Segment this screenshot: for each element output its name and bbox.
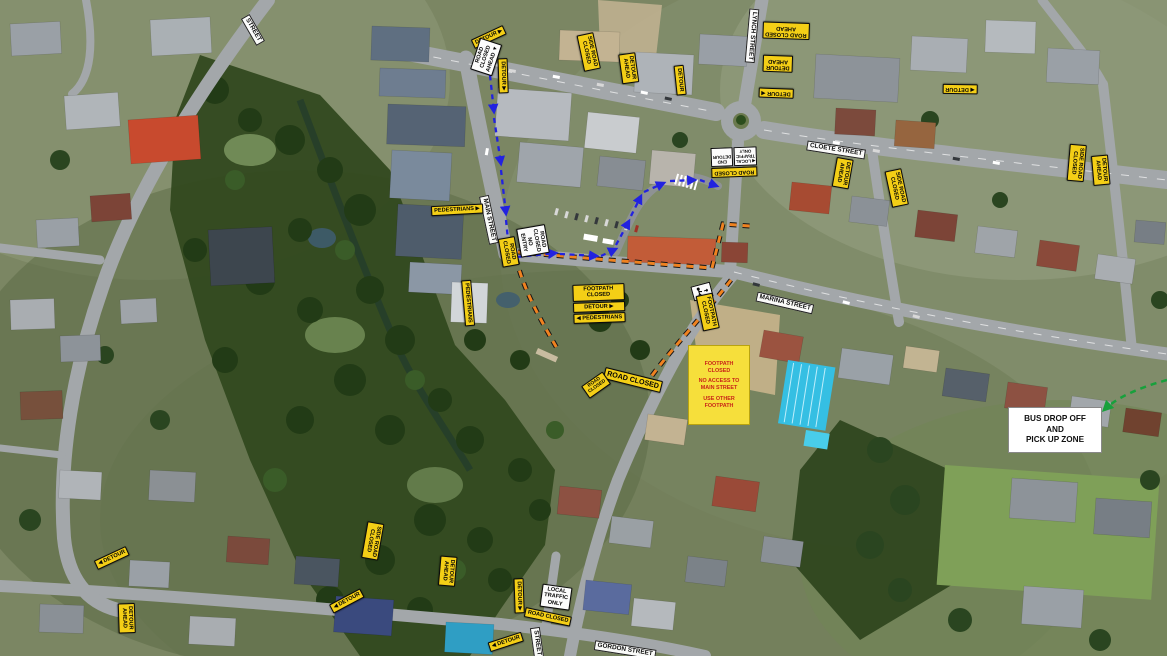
bus-drop-off-zone-label: BUS DROP OFF AND PICK UP ZONE [1008, 407, 1102, 453]
cluster-detour-sign: DETOUR ▶ [573, 301, 625, 313]
street-label-street-s: STREET [530, 627, 544, 656]
sign-road-closed-banner: ROAD CLOSED [603, 367, 663, 393]
assembly-end-detour-panel: END DETOUR [710, 147, 733, 167]
sign-pedestrians-west: PEDESTRIANS ▶ [431, 204, 483, 217]
sign-local-traffic-only-white: LOCALTRAFFICONLY [540, 584, 573, 611]
sign-detour-ahead-wsw: DETOURAHEAD [118, 603, 136, 633]
sign-side-road-closed-north: SIDE ROADCLOSED [577, 32, 601, 72]
sign-layer: FOOTPATH CLOSED DETOUR ▶ ◀ PEDESTRIANS R… [0, 0, 1167, 656]
road-closed-assembly-sign: ROAD CLOSED ◀ LOCAL TRAFFIC ONLY END DET… [710, 146, 757, 178]
footpath-closed-notice: FOOTPATH CLOSED NO ACCESS TO MAIN STREET… [688, 345, 750, 425]
sign-detour-ahead-east: DETOURAHEAD [832, 157, 853, 189]
sign-detour-sw: ◀ DETOUR [329, 588, 365, 614]
assembly-local-traffic-panel: ◀ LOCAL TRAFFIC ONLY [734, 146, 757, 166]
assembly-header: ROAD CLOSED [711, 166, 757, 178]
sign-detour-roundabout-east: ◀ DETOUR [942, 84, 978, 95]
sign-detour-ahead-far-east: DETOURAHEAD [1091, 155, 1110, 186]
sign-detour-ahead-north: DETOURAHEAD [619, 52, 639, 84]
sign-detour-south: DETOUR ▶ [513, 578, 524, 614]
street-label-gordon-street: GORDON STREET [594, 640, 657, 656]
cluster-line: CLOSED [576, 291, 622, 299]
street-label-main-street: MAIN STREET [479, 195, 499, 245]
traffic-management-map: FOOTPATH CLOSED DETOUR ▶ ◀ PEDESTRIANS R… [0, 0, 1167, 656]
footpath-closed-cluster-sign: FOOTPATH CLOSED DETOUR ▶ ◀ PEDESTRIANS [572, 283, 625, 324]
sign-detour-ne: DETOUR ◀ [758, 87, 794, 98]
sign-detour-south-2: ◀ DETOUR [488, 632, 525, 653]
sign-detour-wsw: ◀ DETOUR [94, 546, 130, 570]
sign-no-entry-white: ROADCLOSEDNOENTRY [516, 224, 550, 258]
sign-road-closed-ahead-ne: ROAD CLOSEDAHEAD [762, 22, 810, 40]
street-label-marina-street: MARINA STREET [755, 292, 814, 315]
street-label-lynch-street: LYNCH STREET [745, 8, 760, 63]
sign-side-road-closed-far-east: SIDE ROADCLOSED [1067, 144, 1087, 182]
sign-detour-ahead-sw: DETOURAHEAD [438, 556, 457, 587]
sign-detour-ahead-ne: DETOURAHEAD [763, 55, 793, 73]
sign-footpath-closed-east: FOOTPATHCLOSED [696, 293, 720, 332]
sign-pedestrians-main: PEDESTRIANS [461, 280, 475, 327]
cluster-pedestrians-sign: ◀ PEDESTRIANS [573, 312, 625, 324]
sign-detour-north-2: DETOUR [673, 65, 686, 95]
street-label-cloete-street: CLOETE STREET [806, 140, 866, 159]
sign-side-road-closed-east: SIDE ROADCLOSED [885, 168, 909, 208]
street-label-street-nw: STREET [241, 14, 265, 46]
sign-road-closed-main: ROADCLOSED [498, 236, 519, 268]
sign-side-road-closed-sw: SIDE ROADCLOSED [362, 521, 385, 560]
sign-road-closed-south: ROAD CLOSED [524, 607, 572, 627]
sign-detour-main-north: DETOUR ▶ [497, 58, 508, 94]
